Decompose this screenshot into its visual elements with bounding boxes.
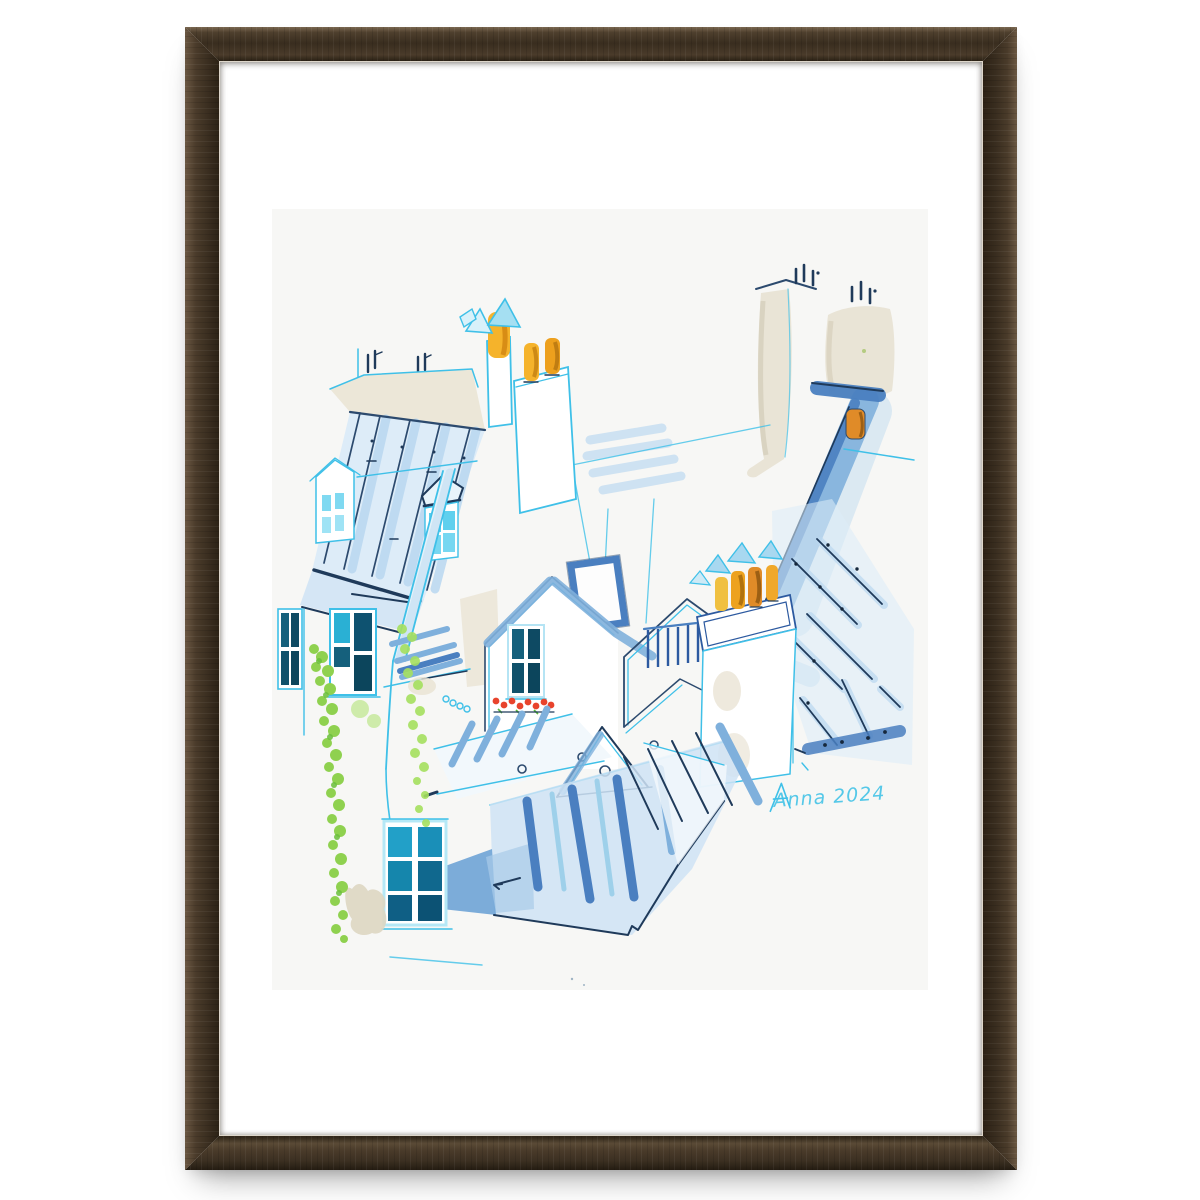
artist-signature: Anna 2024: [768, 776, 886, 812]
tv-antenna: [368, 351, 431, 373]
art-paper: Anna 2024: [272, 209, 928, 990]
frame-rail-bottom: [185, 1136, 1017, 1170]
gutter-chain: [443, 696, 470, 712]
beige-chimney-left: [747, 265, 820, 477]
mat-board: Anna 2024: [219, 61, 983, 1136]
dormer-window: [506, 625, 546, 699]
frame-rail-top: [185, 27, 1017, 61]
beige-chimney-right: [825, 282, 894, 398]
svg-text:Anna 2024: Anna 2024: [771, 782, 886, 812]
left-window: [328, 609, 380, 697]
left-edge-window: [278, 609, 302, 689]
french-door: [382, 819, 452, 929]
dormer-left: [310, 458, 360, 543]
frame-rail-left: [185, 27, 219, 1170]
watercolor-artwork: Anna 2024: [272, 209, 928, 990]
frame-rail-right: [983, 27, 1017, 1170]
orange-pots: [690, 541, 782, 611]
product-photo: Anna 2024: [0, 0, 1200, 1200]
picture-frame: Anna 2024: [185, 27, 1017, 1170]
porch-roof: [384, 629, 470, 695]
